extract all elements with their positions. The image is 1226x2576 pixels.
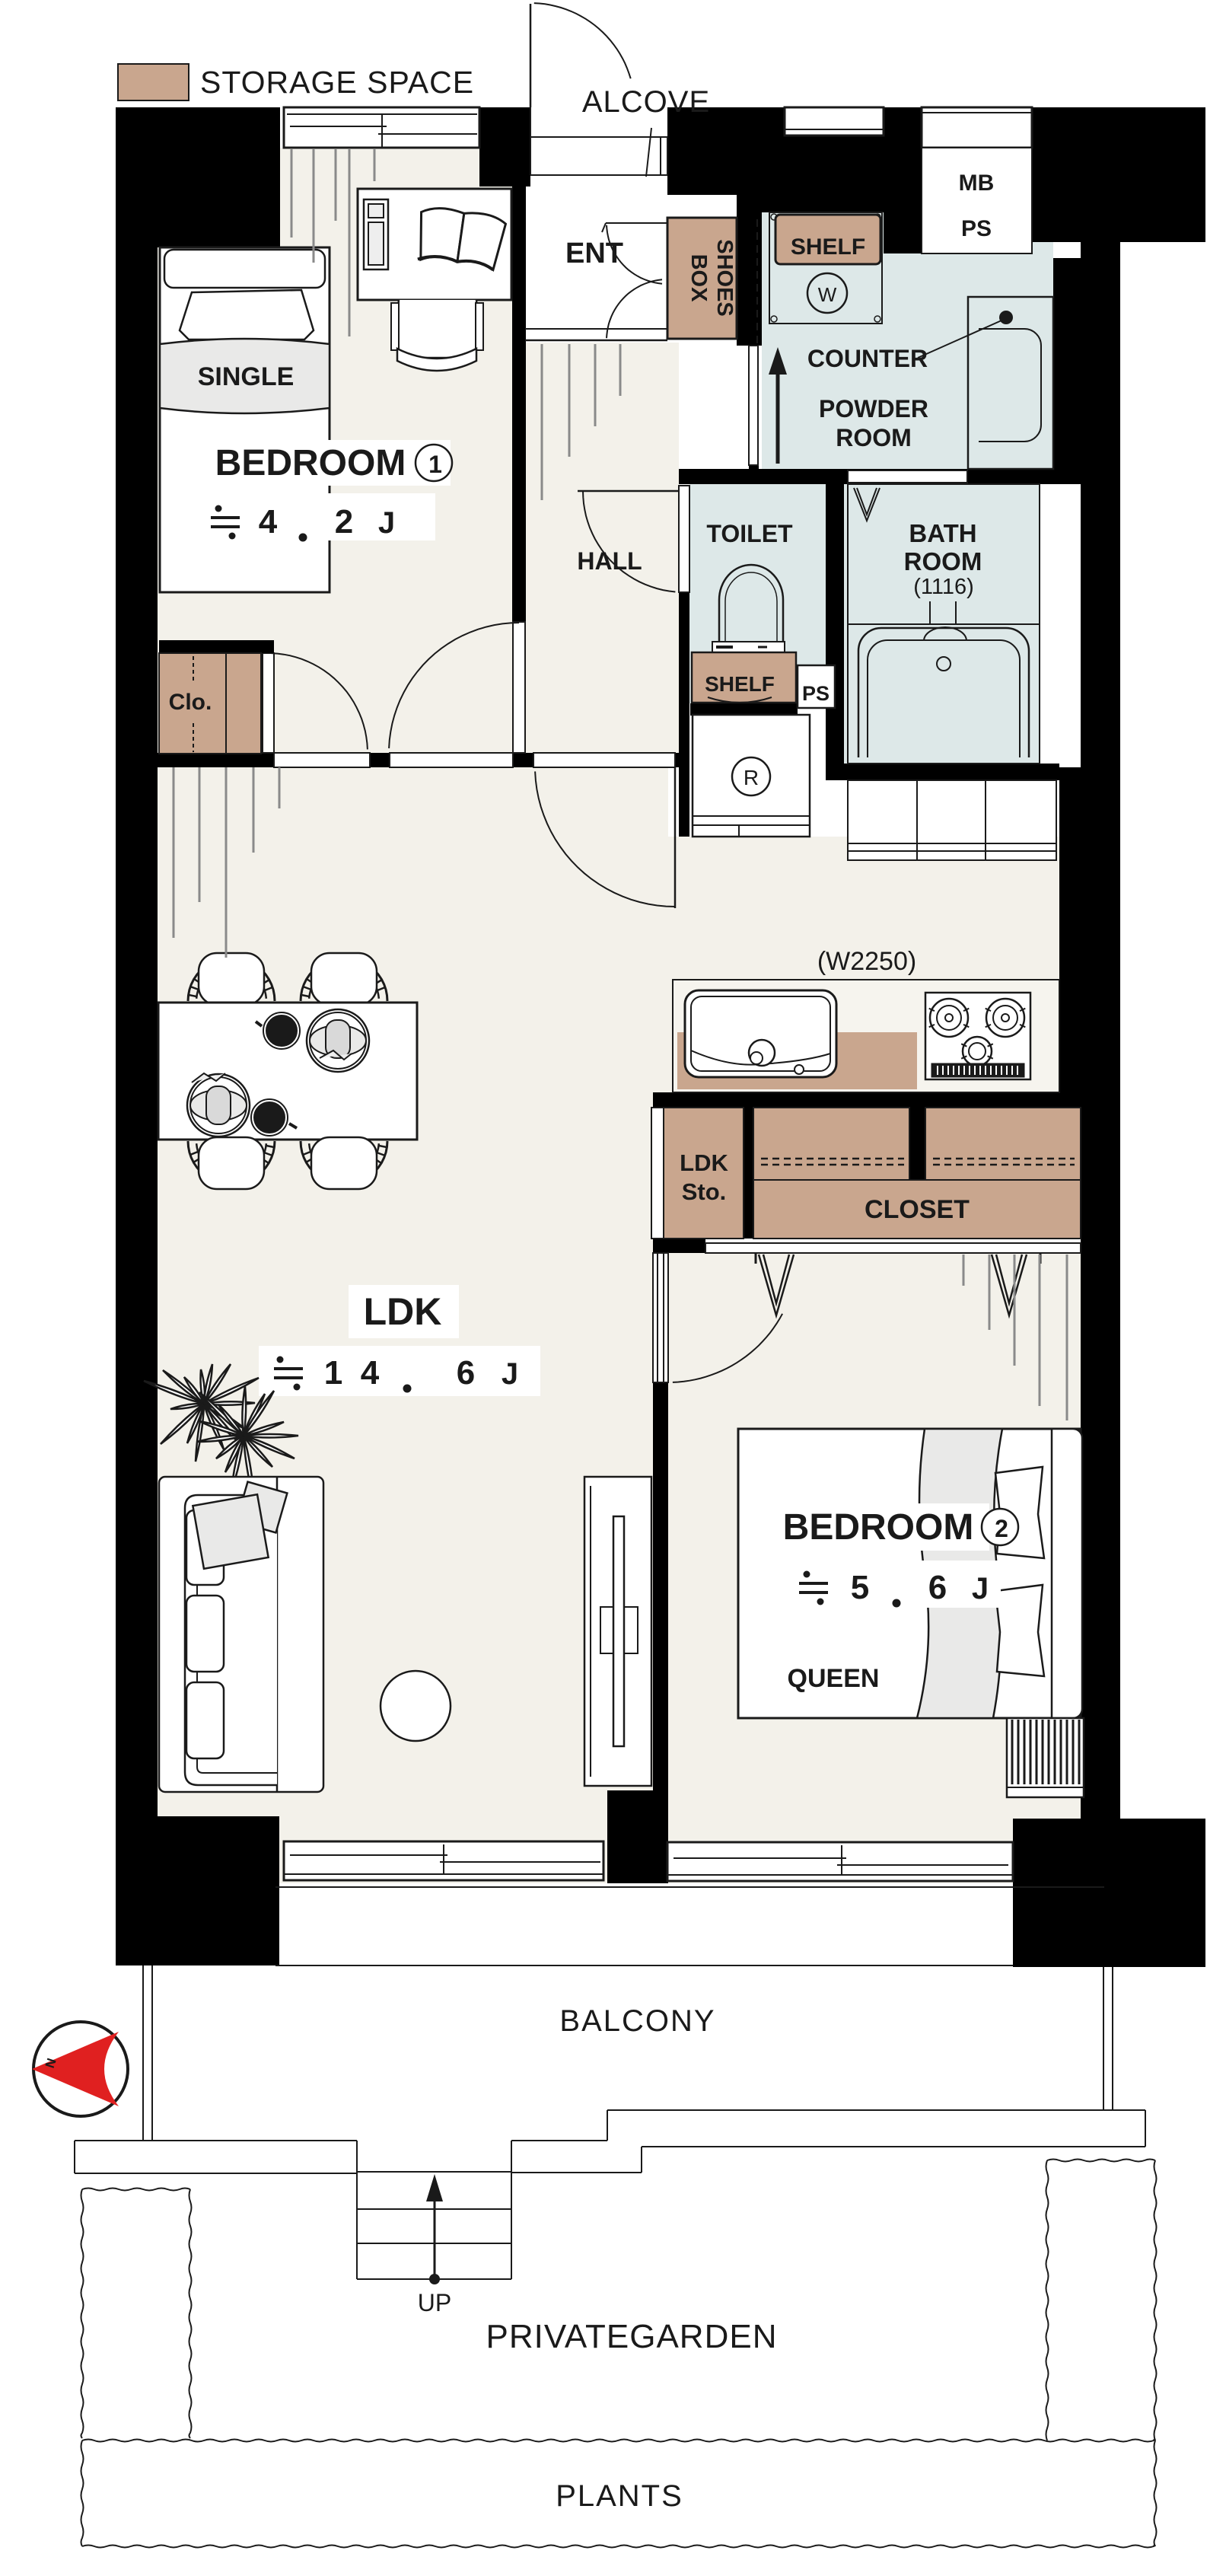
svg-text:BOX: BOX: [686, 254, 711, 303]
svg-text:2: 2: [995, 1515, 1008, 1542]
svg-text:(W2250): (W2250): [817, 947, 916, 976]
svg-text:PLANTS: PLANTS: [556, 2479, 683, 2513]
svg-text:J: J: [378, 506, 395, 540]
svg-text:QUEEN: QUEEN: [788, 1664, 880, 1693]
svg-text:BATH: BATH: [909, 519, 976, 547]
svg-text:POWDER: POWDER: [819, 395, 928, 422]
svg-text:PRIVATEGARDEN: PRIVATEGARDEN: [486, 2318, 778, 2355]
svg-text:LDK: LDK: [680, 1149, 728, 1176]
svg-text:SHOES: SHOES: [712, 239, 737, 317]
svg-text:J: J: [972, 1572, 989, 1605]
svg-text:4: 4: [259, 503, 278, 540]
svg-text:PS: PS: [802, 682, 830, 705]
svg-text:SHELF: SHELF: [705, 672, 775, 696]
svg-text:2: 2: [335, 503, 353, 540]
svg-text:PS: PS: [961, 216, 992, 241]
svg-text:BEDROOM: BEDROOM: [783, 1507, 974, 1548]
svg-text:ROOM: ROOM: [836, 424, 912, 451]
svg-text:1: 1: [324, 1354, 342, 1392]
svg-text:MB: MB: [959, 171, 995, 196]
svg-text:R: R: [744, 766, 759, 789]
svg-text:1: 1: [428, 451, 442, 478]
svg-text:6: 6: [928, 1569, 947, 1606]
svg-text:LDK: LDK: [364, 1290, 442, 1333]
svg-text:6: 6: [457, 1354, 475, 1392]
svg-text:ALCOVE: ALCOVE: [582, 85, 710, 119]
svg-text:J: J: [502, 1357, 518, 1391]
svg-text:TOILET: TOILET: [706, 520, 793, 547]
svg-text:HALL: HALL: [577, 547, 642, 575]
svg-text:ROOM: ROOM: [904, 547, 982, 575]
svg-text:Clo.: Clo.: [169, 690, 212, 715]
svg-text:COUNTER: COUNTER: [807, 345, 928, 372]
svg-text:SHELF: SHELF: [791, 234, 865, 260]
svg-text:UP: UP: [418, 2289, 451, 2316]
svg-text:SINGLE: SINGLE: [198, 362, 295, 391]
svg-text:(1116): (1116): [913, 575, 974, 599]
svg-text:5: 5: [851, 1569, 869, 1606]
svg-text:STORAGE SPACE: STORAGE SPACE: [200, 65, 474, 100]
svg-text:Sto.: Sto.: [682, 1178, 727, 1205]
svg-text:CLOSET: CLOSET: [865, 1195, 970, 1224]
svg-text:W: W: [818, 283, 837, 306]
svg-text:BEDROOM: BEDROOM: [215, 443, 406, 483]
svg-text:4: 4: [361, 1354, 380, 1392]
svg-text:BALCONY: BALCONY: [559, 2004, 715, 2038]
